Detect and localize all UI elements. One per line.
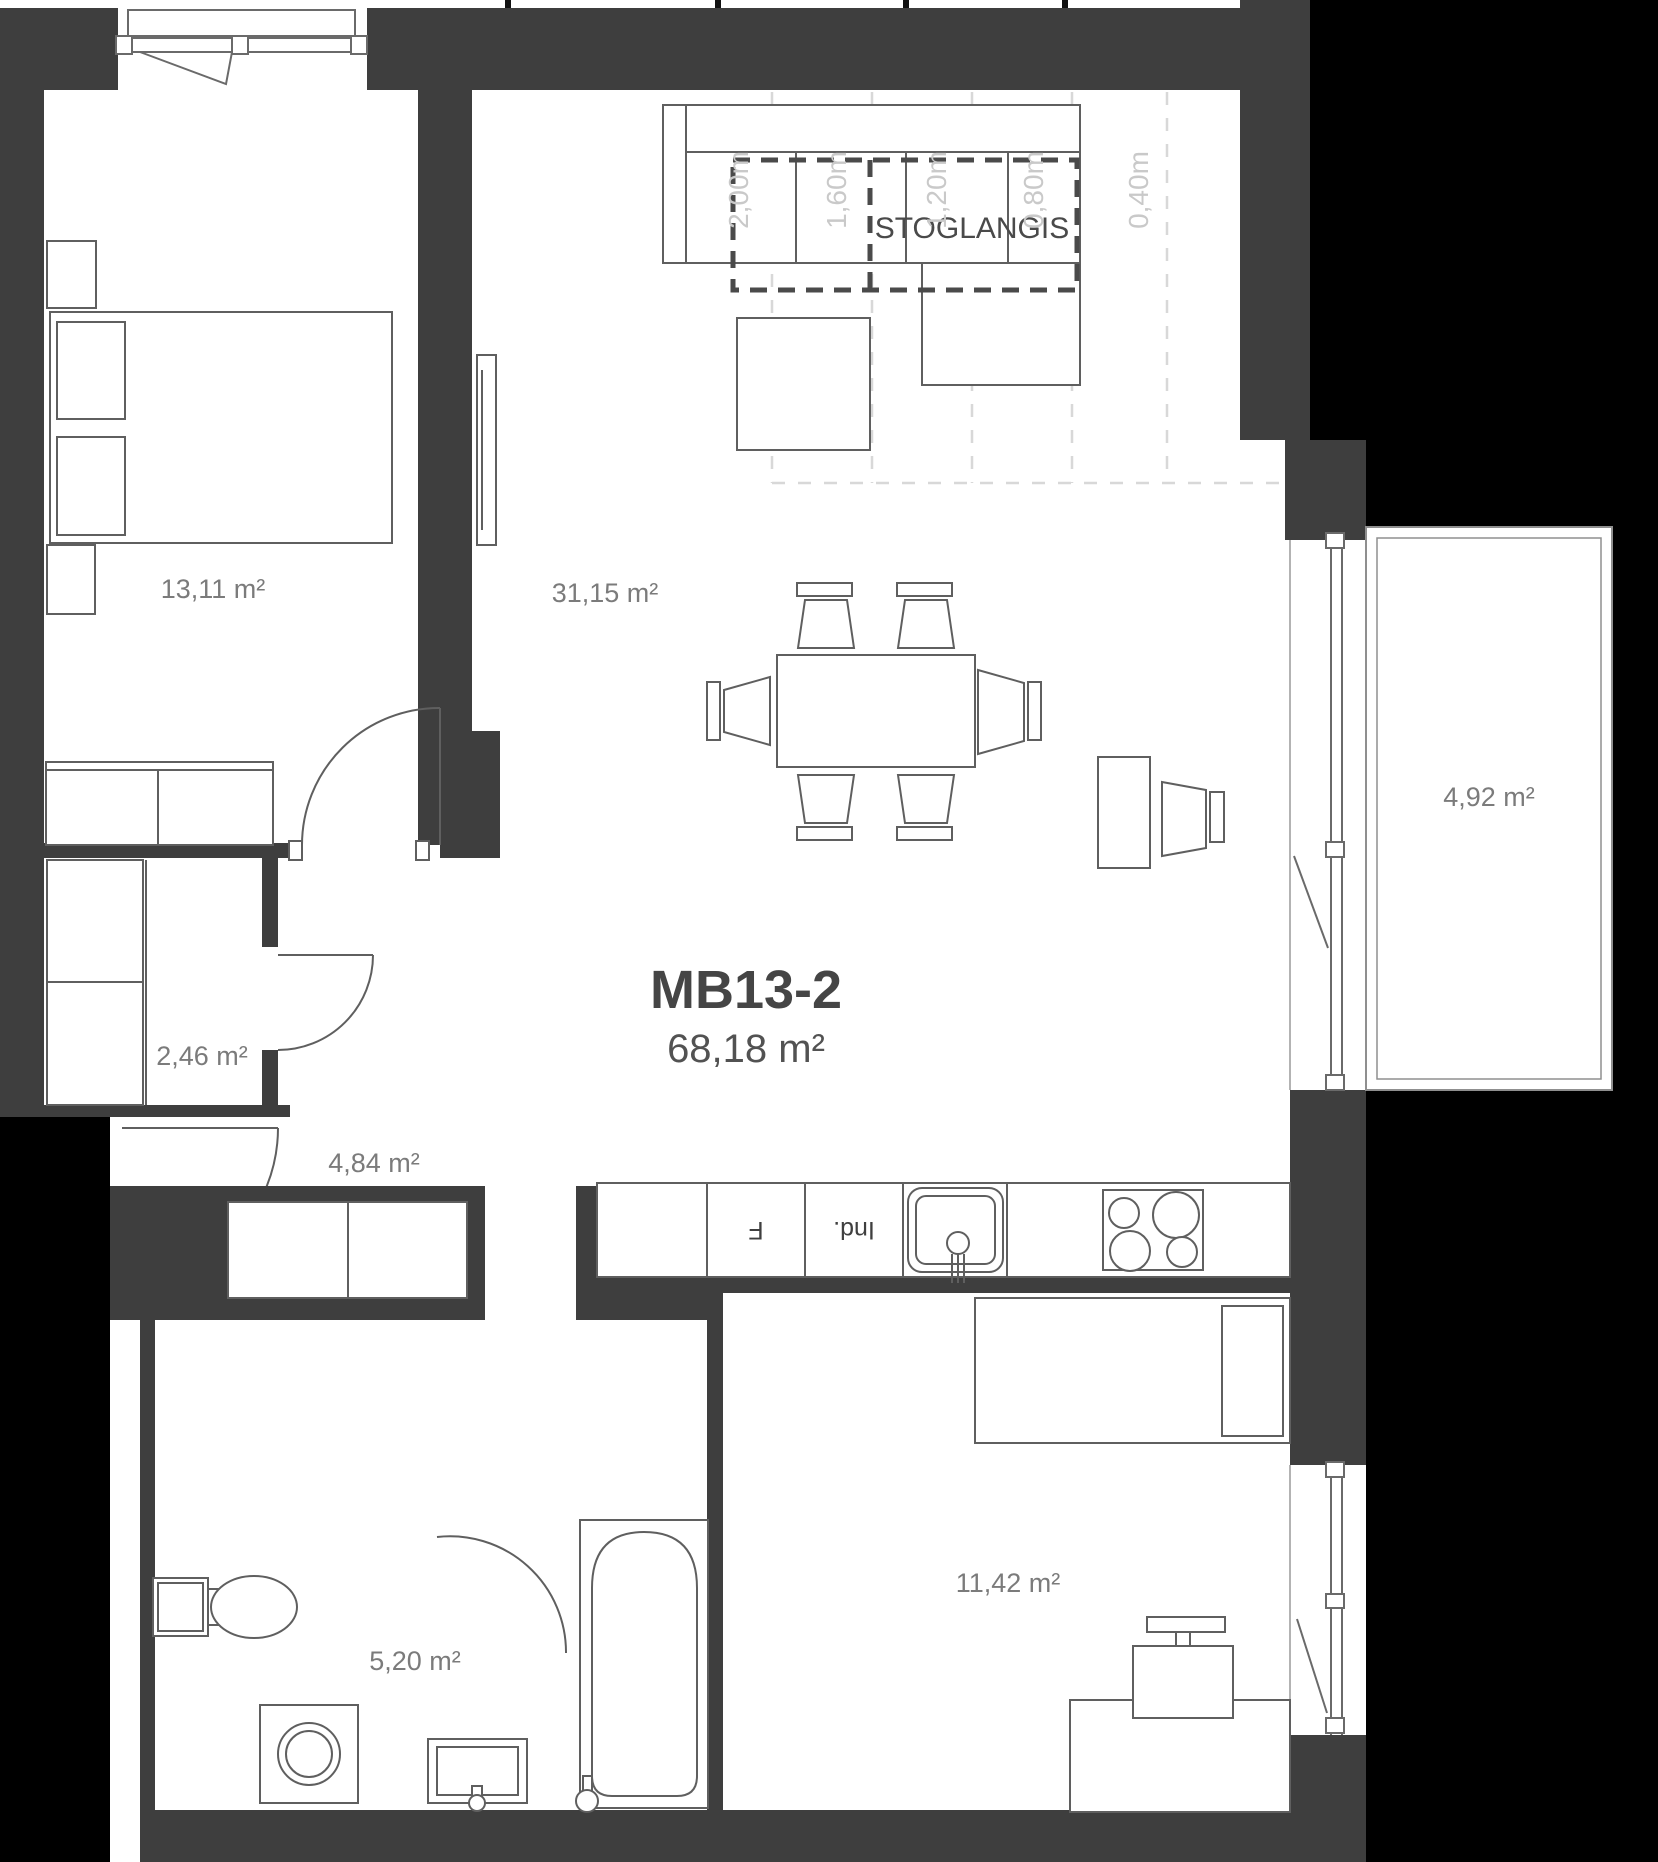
wardrobe xyxy=(46,762,273,845)
room-label-hallway: 4,84 m² xyxy=(328,1148,420,1178)
room-label-bedroom2: 11,42 m² xyxy=(956,1568,1061,1598)
nightstand xyxy=(47,545,95,614)
room-label-closet: 2,46 m² xyxy=(156,1041,248,1071)
desk-chair xyxy=(1133,1617,1233,1718)
bathroom-sink xyxy=(428,1739,527,1811)
unit-area-label: 68,18 m² xyxy=(667,1027,825,1071)
dishwasher-label: Ind. xyxy=(833,1216,875,1244)
roof-height-label: 0,80m xyxy=(1018,151,1049,229)
hallway-closet xyxy=(228,1202,467,1298)
bathtub xyxy=(576,1520,708,1812)
kitchen-sink xyxy=(908,1188,1003,1283)
chair xyxy=(707,677,770,745)
nightstand xyxy=(47,241,96,308)
fridge-label: F xyxy=(748,1216,763,1244)
side-table xyxy=(1098,757,1150,868)
roof-height-label: 2,00m xyxy=(723,151,754,229)
toilet xyxy=(153,1576,297,1638)
closet-room xyxy=(47,860,146,1105)
roof-height-label: 1,60m xyxy=(821,151,852,229)
floor-plan-page: MB13-2 68,18 m² 13,11 m² 31,15 m² 2,46 m… xyxy=(0,0,1658,1862)
coffee-table xyxy=(737,318,870,450)
unit-id-label: MB13-2 xyxy=(650,960,842,1020)
dining-table xyxy=(777,655,975,767)
chair xyxy=(797,775,854,840)
tv xyxy=(477,355,496,545)
chair xyxy=(797,583,854,648)
room-label-living: 31,15 m² xyxy=(552,578,659,608)
chair xyxy=(897,583,954,648)
room-label-balcony: 4,92 m² xyxy=(1443,782,1535,812)
roof-height-label: 1,20m xyxy=(921,151,952,229)
kitchen-counter xyxy=(597,1183,1290,1283)
room-label-bathroom: 5,20 m² xyxy=(369,1646,461,1676)
pillow xyxy=(57,437,125,535)
pillow xyxy=(1222,1306,1283,1436)
sofa-chaise xyxy=(922,263,1080,385)
roof-height-label: 0,40m xyxy=(1123,151,1154,229)
chair xyxy=(897,775,954,840)
washing-machine xyxy=(260,1705,358,1803)
floor-plan-canvas: MB13-2 68,18 m² 13,11 m² 31,15 m² 2,46 m… xyxy=(0,0,1658,1862)
cooktop xyxy=(1103,1190,1203,1271)
room-label-bedroom1: 13,11 m² xyxy=(161,574,266,604)
pillow xyxy=(57,322,125,419)
